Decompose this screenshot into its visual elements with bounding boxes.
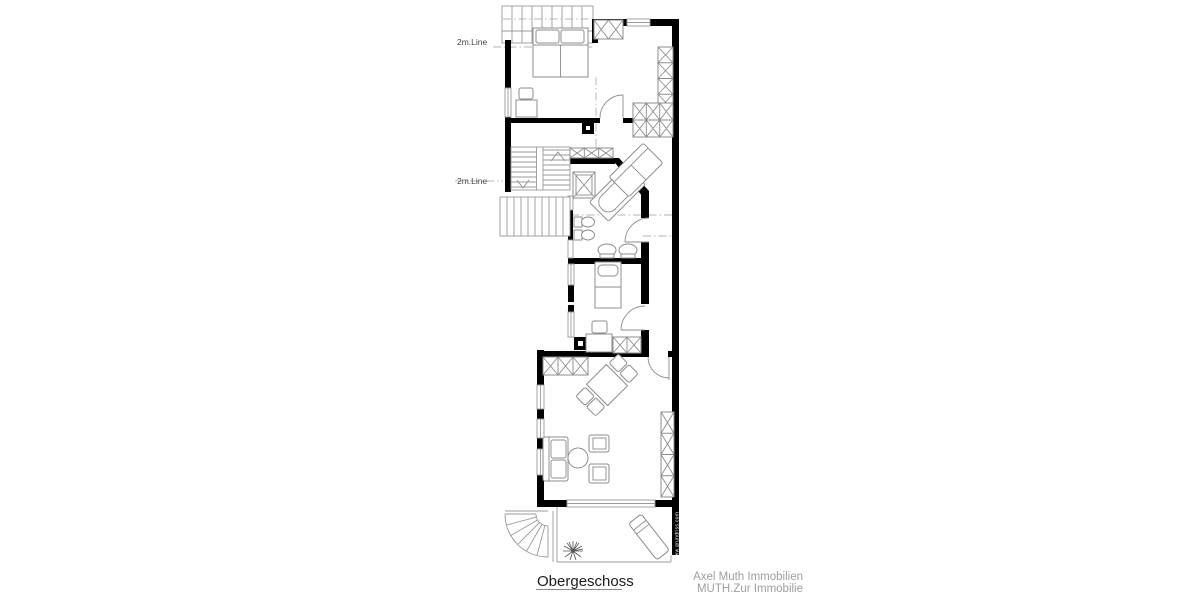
middle-bedroom bbox=[586, 262, 641, 353]
door-middle-room bbox=[621, 306, 645, 330]
coffee-table bbox=[568, 448, 588, 468]
desk-middle bbox=[586, 321, 612, 352]
floor-plan-page: 2m.Line 2m.Line Obergeschoss Axel Muth I… bbox=[0, 0, 1200, 600]
wardrobe-top bbox=[594, 20, 623, 39]
wardrobe-middle bbox=[613, 337, 641, 353]
shower bbox=[573, 172, 595, 198]
roof-line-label-top: 2m.Line bbox=[457, 37, 488, 47]
toilet-1 bbox=[574, 217, 595, 227]
single-bed bbox=[595, 262, 621, 308]
living-room bbox=[543, 353, 674, 497]
washbasin-1 bbox=[598, 244, 616, 258]
shelf-column bbox=[661, 412, 674, 497]
terrace bbox=[505, 507, 671, 562]
landing-closet-row bbox=[570, 148, 613, 158]
floor-plan-drawing: 2m.Line 2m.Line Obergeschoss Axel Muth I… bbox=[0, 0, 1200, 600]
roof-line-label-mid: 2m.Line bbox=[457, 176, 488, 186]
sun-lounger bbox=[629, 514, 670, 560]
double-bed bbox=[533, 28, 588, 77]
lower-stair-under-roof bbox=[500, 197, 570, 236]
door-living-room bbox=[648, 357, 669, 380]
sofa bbox=[543, 437, 568, 481]
plant bbox=[563, 541, 583, 560]
branding-line2: MUTH.Zur Immobilie bbox=[697, 583, 803, 595]
armchair-1 bbox=[589, 435, 609, 452]
branding-line1: Axel Muth Immobilien bbox=[693, 571, 803, 583]
toilet-2 bbox=[574, 230, 595, 240]
spiral-staircase bbox=[505, 511, 553, 562]
wardrobe-right-column bbox=[658, 47, 673, 110]
washbasin-2 bbox=[619, 244, 637, 258]
armchair-2 bbox=[589, 464, 609, 483]
door-bathroom bbox=[625, 218, 649, 242]
floor-title: Obergeschoss bbox=[537, 573, 634, 590]
wardrobe-living bbox=[543, 357, 588, 375]
desk bbox=[516, 88, 537, 117]
door-bedroom bbox=[600, 95, 623, 118]
hall-wardrobe-block bbox=[633, 103, 673, 137]
watermark: www.grundriss.com bbox=[675, 512, 681, 560]
